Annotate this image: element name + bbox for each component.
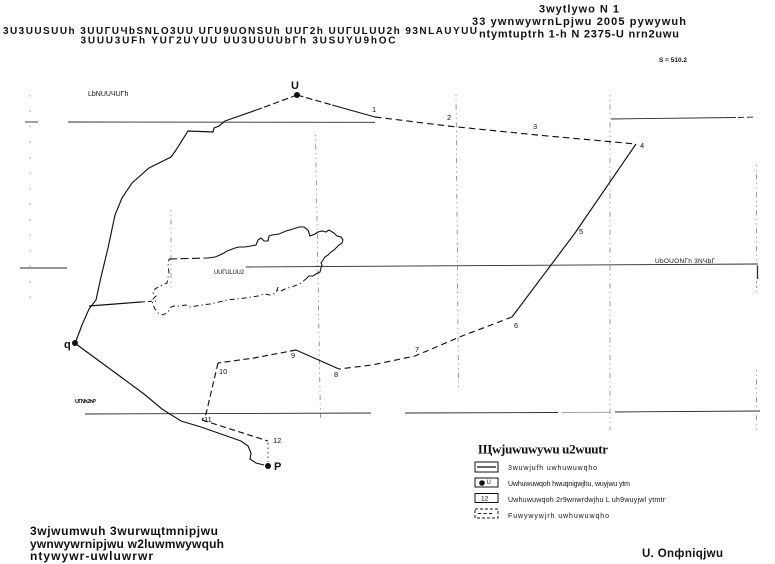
svg-text:10: 10 [219, 367, 227, 376]
svg-text:3: 3 [533, 122, 537, 131]
svg-text:U: U [487, 480, 491, 486]
svg-text:33 ywnwywrnLpjwu 2005 pywywuh: 33 ywnwywrnLpjwu 2005 pywywuh [472, 16, 686, 28]
svg-text:Uwhuwuwqoh hwuqnigwjhu, wuyjwu: Uwhuwuwqoh hwuqnigwjhu, wuyjwu ytm [508, 481, 630, 488]
svg-text:UUГULUU2: UUГULUU2 [214, 270, 245, 276]
svg-text:4: 4 [640, 141, 644, 150]
svg-text:8: 8 [334, 370, 338, 379]
svg-text:3U3UUSUUh 3UUГUЧbSNLO3UU UГU9U: 3U3UUSUUh 3UUГUЧbSNLO3UU UГU9UONSUh UUГ2… [3, 26, 477, 37]
svg-text:ntywywr-uwluwrwr: ntywywr-uwluwrwr [30, 549, 153, 563]
svg-text:5: 5 [579, 227, 583, 236]
svg-text:U: U [291, 80, 299, 92]
svg-text:11: 11 [204, 415, 212, 424]
svg-text:3wytlywo N 1: 3wytlywo N 1 [539, 4, 619, 16]
svg-text:LbNUUЧUГh: LbNUUЧUГh [88, 91, 128, 98]
svg-text:3UUU3UFh YUГ2UYUU UU3UUUUbГh 3: 3UUU3UFh YUГ2UYUU UU3UUUUbГh 3USUYU9hOC [81, 36, 396, 47]
svg-text:12: 12 [481, 496, 489, 503]
svg-text:P: P [274, 461, 281, 473]
svg-text:Uwhuwuwqoh 2r9wnwrdwjhu L uh9w: Uwhuwuwqoh 2r9wnwrdwjhu L uh9wuyjwl ytmt… [508, 497, 666, 504]
svg-text:1: 1 [372, 105, 376, 114]
svg-text:12: 12 [273, 436, 281, 445]
svg-text:6: 6 [514, 321, 518, 330]
svg-text:U. Onфniqjwu: U. Onфniqjwu [642, 548, 723, 560]
svg-text:Fuwywywjrh uwhuwuwqho: Fuwywywjrh uwhuwuwqho [508, 513, 609, 520]
svg-text:7: 7 [415, 345, 419, 354]
svg-text:S = 510.2: S = 510.2 [659, 57, 687, 64]
svg-text:9: 9 [291, 351, 295, 360]
svg-text:3wuwjufh uwhuwuwqho: 3wuwjufh uwhuwuwqho [508, 465, 597, 472]
svg-text:2: 2 [447, 113, 451, 122]
svg-text:UГNh2hP: UГNh2hP [75, 399, 96, 405]
svg-text:UbOUONГh 3NЧbГ: UbOUONГh 3NЧbГ [655, 258, 715, 265]
svg-text:ntymtuptrh 1-h N 2375-U nrn2uw: ntymtuptrh 1-h N 2375-U nrn2uwu [479, 29, 679, 41]
svg-text:3wjwumwuh 3wurwщtmnipjwu: 3wjwumwuh 3wurwщtmnipjwu [30, 524, 218, 538]
svg-text:q: q [64, 339, 71, 351]
svg-text:Щwjuwuwywu u2wuutr: Щwjuwuwywu u2wuutr [478, 442, 608, 457]
